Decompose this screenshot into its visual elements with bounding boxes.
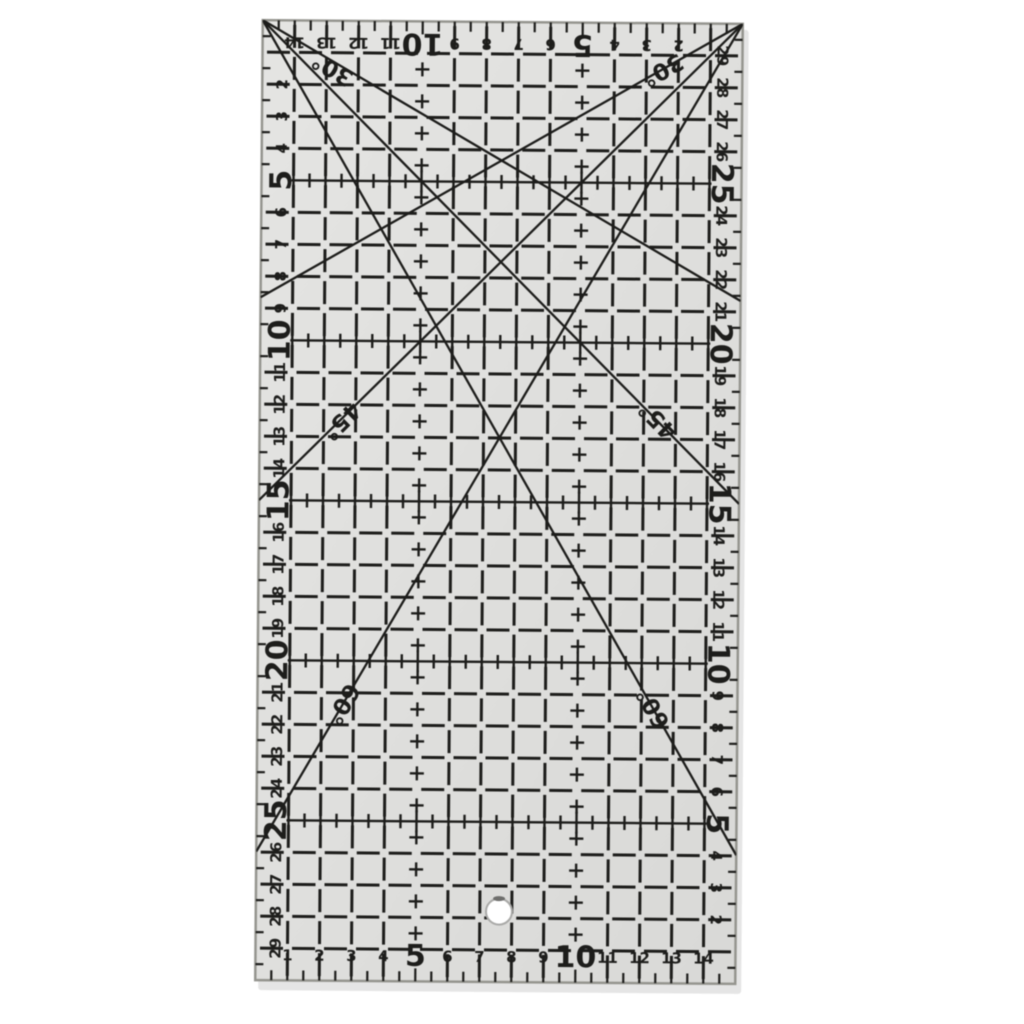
scale-number: 10	[402, 26, 444, 61]
scale-number: 5	[572, 27, 593, 62]
scale-number: 15	[701, 483, 736, 525]
scale-number: 28	[267, 906, 285, 927]
scale-number: 7	[513, 35, 524, 53]
scale-number: 18	[269, 586, 287, 607]
scale-number: 22	[712, 269, 730, 290]
scale-number: 15	[261, 479, 296, 521]
scale-number: 6	[708, 786, 726, 797]
scale-number: 7	[708, 754, 726, 765]
scale-number: 16	[270, 522, 288, 543]
scale-number: 23	[268, 746, 286, 767]
scale-number: 19	[269, 618, 287, 639]
scale-number: 21	[268, 682, 286, 703]
scale-number: 4	[707, 850, 725, 861]
scale-number: 24	[712, 205, 730, 226]
scale-number: 3	[273, 111, 291, 122]
scale-number: 7	[272, 239, 290, 250]
scale-number: 20	[260, 639, 295, 681]
scale-number: 14	[270, 458, 288, 479]
scale-number: 11	[380, 34, 401, 52]
scale-number: 8	[506, 948, 517, 966]
scale-number: 11	[709, 621, 727, 642]
scale-number: 29	[266, 938, 284, 959]
scale-number: 3	[641, 36, 652, 54]
scale-number: 7	[474, 948, 485, 966]
scale-number: 3	[707, 882, 725, 893]
scale-number: 4	[273, 143, 291, 154]
scale-number: 8	[481, 35, 492, 53]
scale-number: 4	[609, 36, 620, 54]
scale-number: 10	[700, 643, 735, 685]
scale-number: 13	[661, 949, 682, 967]
scale-number: 9	[449, 35, 460, 53]
scale-number: 2	[273, 79, 291, 90]
scale-number: 12	[348, 34, 369, 52]
scale-number: 2	[707, 914, 725, 925]
scale-number: 23	[712, 237, 730, 258]
scale-number: 19	[711, 365, 729, 386]
scale-number: 10	[263, 319, 298, 361]
scale-number: 14	[693, 950, 714, 968]
scale-number: 9	[538, 948, 549, 966]
scale-number: 9	[271, 303, 289, 314]
scale-number: 12	[709, 589, 727, 610]
scale-number: 12	[629, 949, 650, 967]
scale-number: 26	[713, 141, 731, 162]
product-photo-quilting-ruler: 30°30°45°45°60°60°1413121110987654321234…	[0, 0, 1024, 1024]
scale-number: 11	[597, 949, 618, 967]
scale-number: 21	[711, 301, 729, 322]
scale-number: 14	[284, 33, 305, 51]
scale-number: 6	[442, 948, 453, 966]
scale-number: 16	[710, 461, 728, 482]
scale-number: 22	[268, 714, 286, 735]
scale-number: 8	[272, 271, 290, 282]
scale-number: 27	[267, 874, 285, 895]
scale-number: 13	[270, 426, 288, 447]
scale-number: 3	[346, 947, 357, 965]
scale-number: 25	[704, 163, 739, 205]
scale-number: 18	[711, 397, 729, 418]
scale-number: 12	[271, 394, 289, 415]
scale-number: 13	[316, 34, 337, 52]
ruler: 30°30°45°45°60°60°1413121110987654321234…	[255, 20, 749, 994]
scale-number: 20	[703, 323, 738, 365]
scale-number: 11	[271, 362, 289, 383]
ruler-photo-canvas: 30°30°45°45°60°60°1413121110987654321234…	[0, 0, 1024, 1024]
scale-number: 4	[378, 947, 389, 965]
scale-number: 5	[405, 939, 426, 974]
scale-number: 14	[710, 525, 728, 546]
scale-number: 25	[259, 799, 294, 841]
scale-number: 28	[713, 77, 731, 98]
scale-number: 17	[710, 429, 728, 450]
scale-number: 2	[673, 36, 684, 54]
scale-number: 26	[267, 842, 285, 863]
scale-number: 6	[272, 207, 290, 218]
scale-number: 6	[545, 35, 556, 53]
scale-number: 29	[713, 45, 731, 66]
scale-number: 24	[268, 778, 286, 799]
scale-number: 10	[554, 940, 596, 975]
scale-number: 9	[708, 690, 726, 701]
scale-number: 8	[708, 722, 726, 733]
scale-number: 17	[269, 554, 287, 575]
scale-number: 5	[699, 813, 734, 834]
scale-number: 5	[264, 170, 299, 191]
scale-number: 13	[709, 557, 727, 578]
scale-number: 2	[314, 947, 325, 965]
scale-number: 27	[713, 109, 731, 130]
